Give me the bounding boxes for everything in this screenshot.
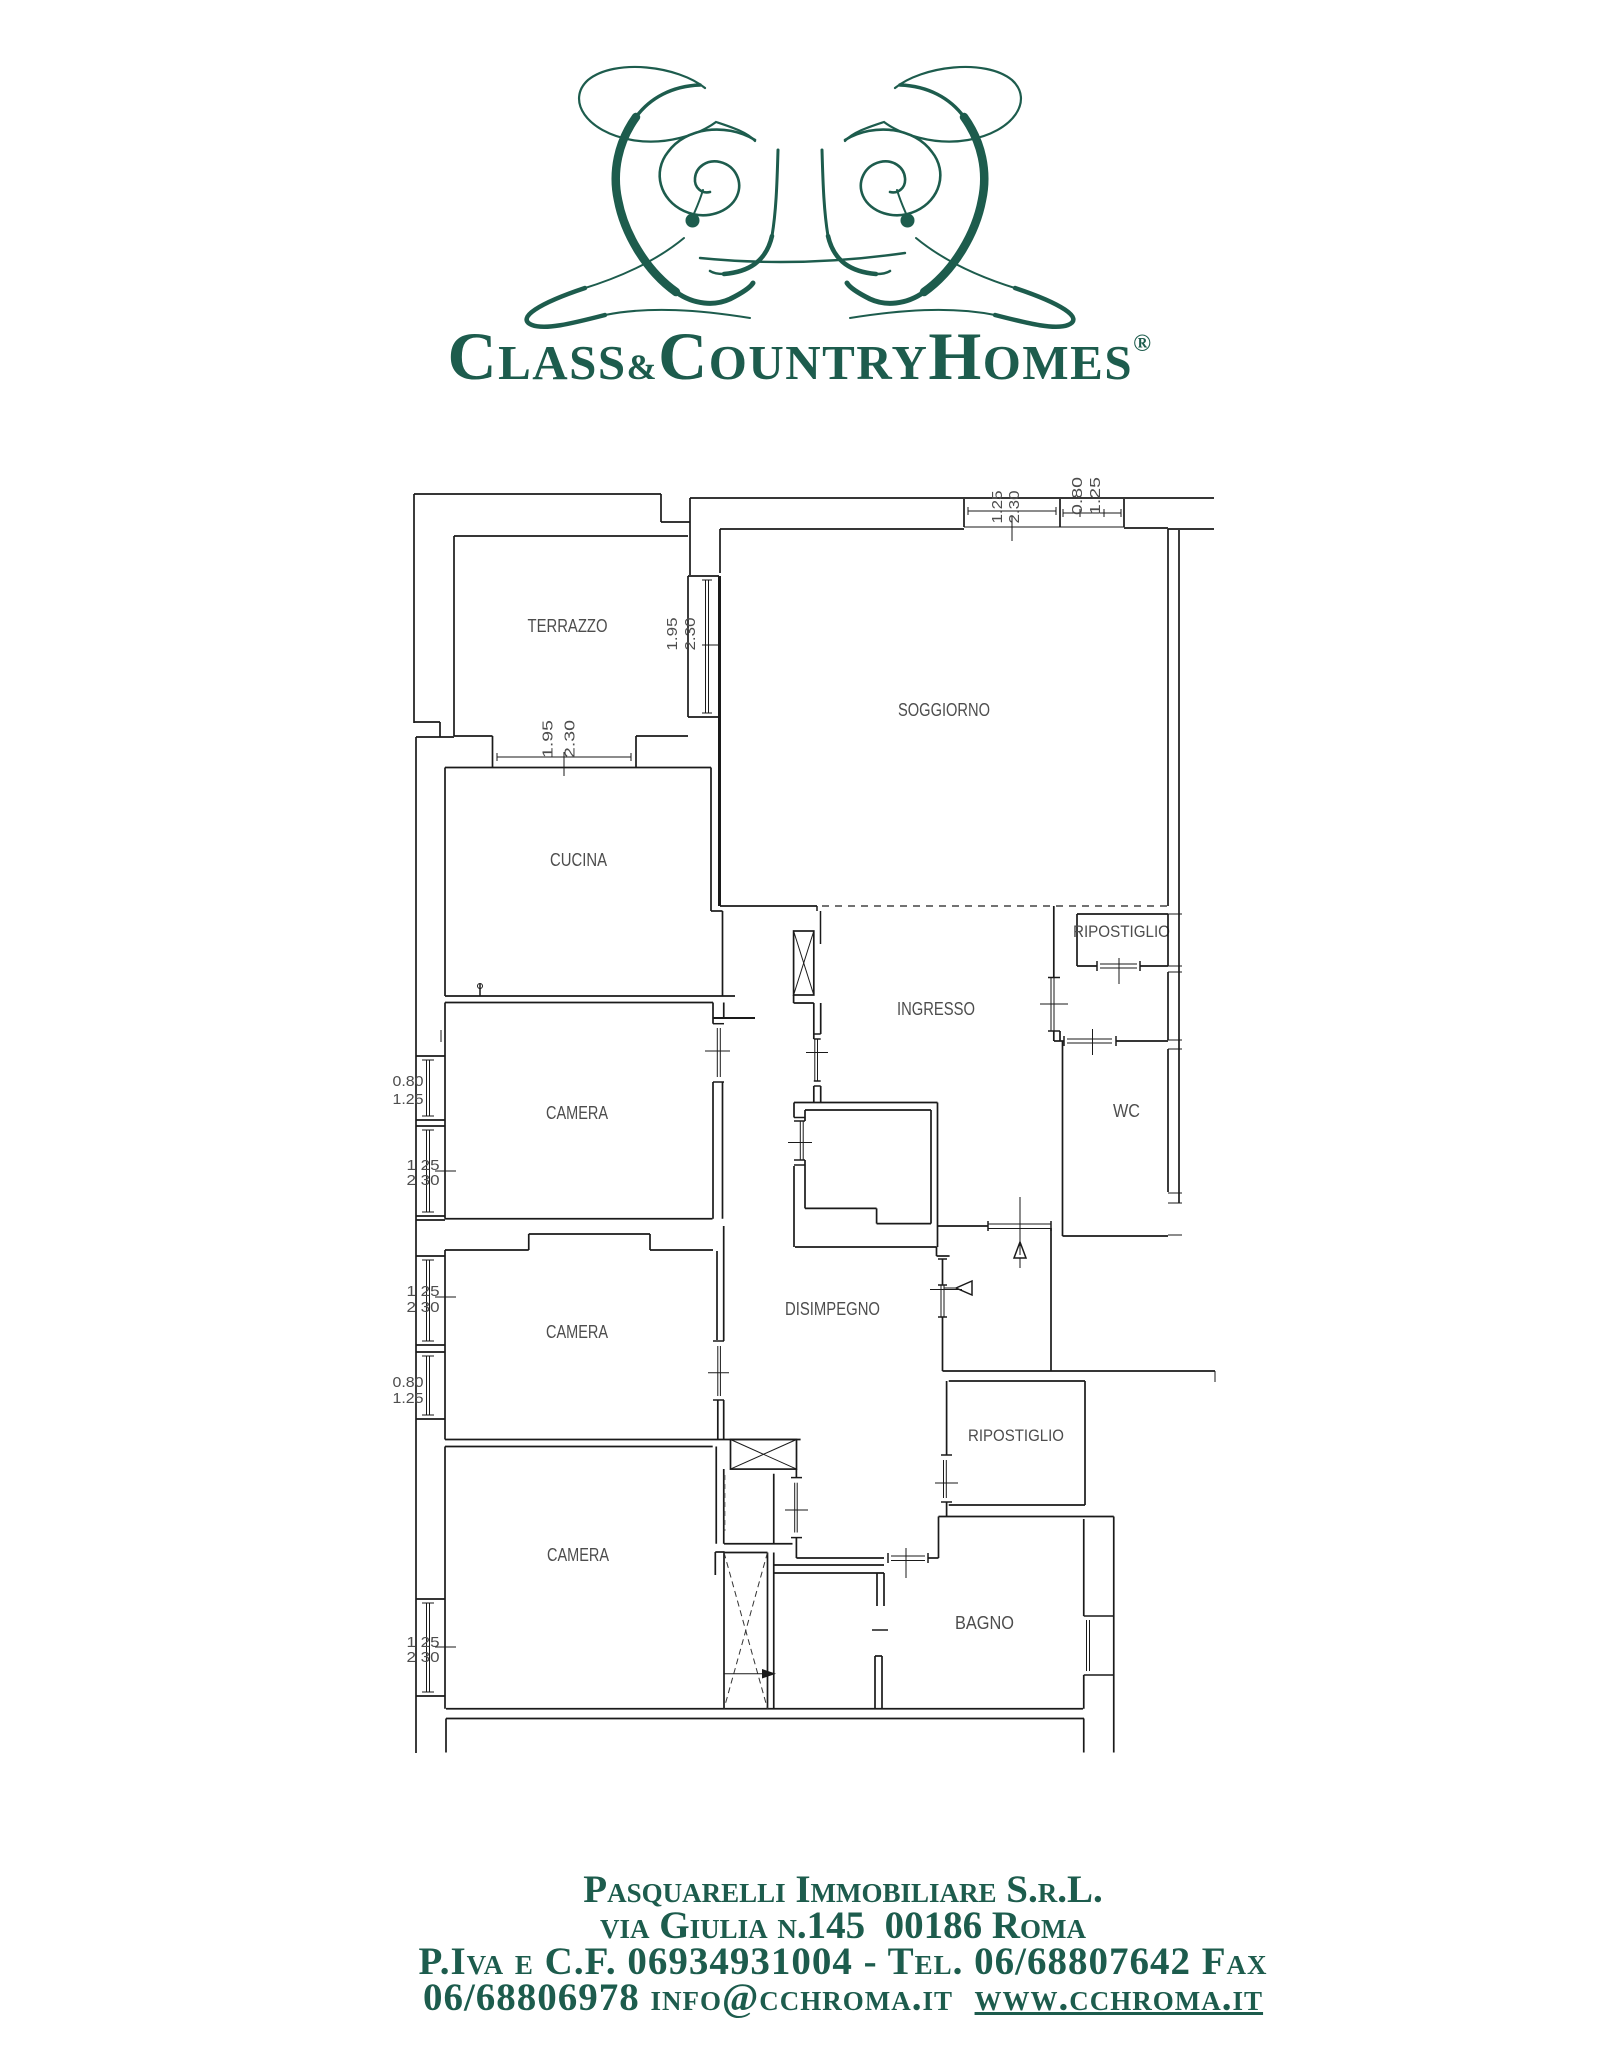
svg-text:WC: WC: [1113, 1101, 1140, 1121]
svg-text:2 30: 2 30: [407, 1649, 440, 1666]
svg-text:CUCINA: CUCINA: [550, 850, 607, 870]
svg-text:2.30: 2.30: [1006, 491, 1023, 524]
svg-text:1.25: 1.25: [393, 1390, 424, 1407]
svg-text:2 30: 2 30: [407, 1299, 440, 1316]
svg-text:0.80: 0.80: [393, 1073, 424, 1090]
svg-text:CAMERA: CAMERA: [546, 1322, 608, 1342]
svg-text:1.95: 1.95: [664, 618, 681, 651]
svg-text:CAMERA: CAMERA: [547, 1545, 609, 1565]
svg-text:0.80: 0.80: [393, 1374, 424, 1391]
svg-text:1.25: 1.25: [393, 1091, 424, 1108]
svg-text:1.25: 1.25: [1087, 477, 1104, 515]
svg-text:0.80: 0.80: [1069, 477, 1086, 515]
svg-text:BAGNO: BAGNO: [955, 1613, 1014, 1633]
svg-text:2 30: 2 30: [407, 1172, 440, 1189]
svg-text:1.25: 1.25: [989, 491, 1006, 524]
svg-text:RIPOSTIGLIO: RIPOSTIGLIO: [1073, 922, 1170, 941]
svg-text:SOGGIORNO: SOGGIORNO: [898, 700, 990, 720]
svg-text:INGRESSO: INGRESSO: [897, 999, 975, 1019]
svg-text:2.30: 2.30: [682, 618, 699, 651]
svg-text:CAMERA: CAMERA: [546, 1103, 608, 1123]
svg-text:RIPOSTIGLIO: RIPOSTIGLIO: [968, 1426, 1064, 1445]
svg-text:2.30: 2.30: [562, 720, 579, 758]
svg-text:DISIMPEGNO: DISIMPEGNO: [785, 1299, 880, 1319]
svg-text:1.95: 1.95: [540, 720, 557, 758]
svg-text:1 25: 1 25: [407, 1283, 440, 1300]
svg-text:TERRAZZO: TERRAZZO: [528, 616, 608, 636]
